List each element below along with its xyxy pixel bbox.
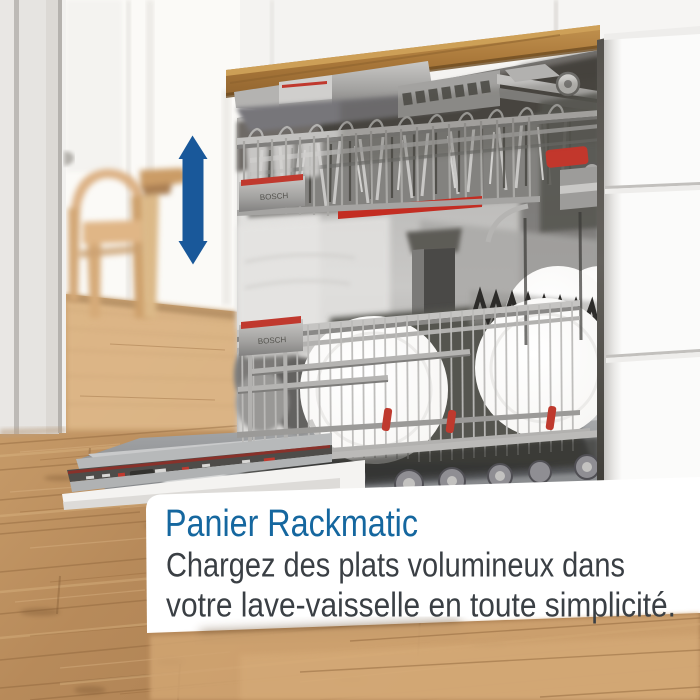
svg-text:votre lave-vaisselle en toute: votre lave-vaisselle en toute simplicité… <box>166 587 676 625</box>
svg-text:Panier Rackmatic: Panier Rackmatic <box>165 503 418 545</box>
svg-text:Chargez des plats volumineux d: Chargez des plats volumineux dans <box>166 547 625 585</box>
